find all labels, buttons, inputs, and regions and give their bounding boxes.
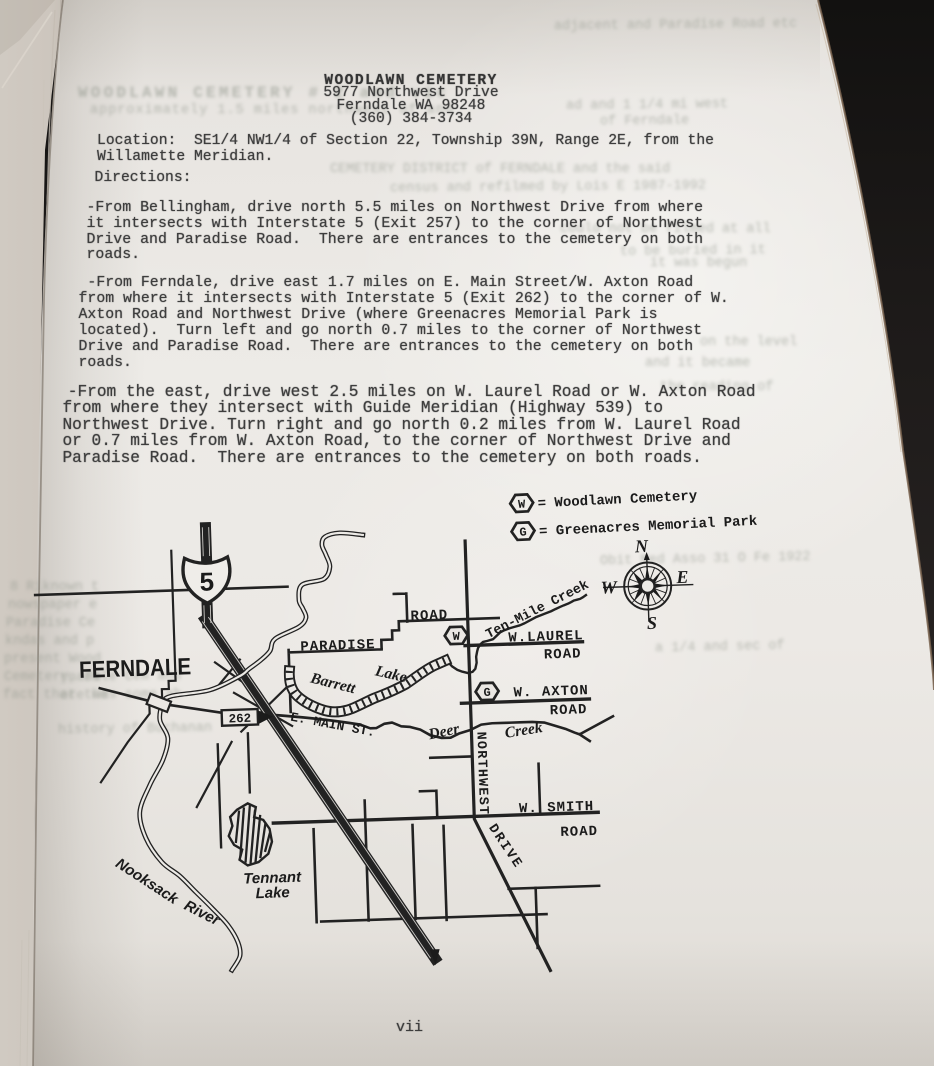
svg-text:S: S bbox=[647, 613, 658, 633]
svg-text:ROAD: ROAD bbox=[550, 702, 588, 719]
svg-text:NORTHWEST: NORTHWEST bbox=[472, 731, 490, 815]
svg-text:ROAD: ROAD bbox=[410, 608, 448, 625]
svg-text:Barrett: Barrett bbox=[308, 669, 358, 697]
svg-text:Lake: Lake bbox=[373, 662, 409, 686]
svg-text:ROAD: ROAD bbox=[560, 824, 598, 841]
svg-text:DRIVE: DRIVE bbox=[484, 822, 525, 872]
svg-text:Nooksack: Nooksack bbox=[112, 855, 181, 908]
svg-text:262: 262 bbox=[228, 712, 251, 727]
svg-text:W.LAUREL: W.LAUREL bbox=[508, 628, 584, 646]
svg-text:5: 5 bbox=[199, 566, 214, 596]
svg-text:FERNDALE: FERNDALE bbox=[79, 653, 192, 683]
svg-text:N: N bbox=[634, 536, 650, 556]
svg-text:W: W bbox=[518, 497, 527, 511]
svg-text:W. AXTON: W. AXTON bbox=[513, 683, 589, 701]
svg-text:G: G bbox=[483, 686, 491, 700]
svg-text:W: W bbox=[452, 630, 460, 644]
svg-text:Lake: Lake bbox=[255, 884, 290, 902]
svg-text:G: G bbox=[519, 525, 527, 539]
svg-text:= Greenacres Memorial Park: = Greenacres Memorial Park bbox=[539, 514, 758, 541]
svg-text:W: W bbox=[600, 577, 619, 598]
svg-text:Deer: Deer bbox=[426, 720, 462, 743]
svg-text:E: E bbox=[675, 567, 689, 587]
svg-text:River: River bbox=[181, 897, 223, 930]
svg-text:= Woodlawn Cemetery: = Woodlawn Cemetery bbox=[537, 489, 698, 513]
svg-text:ROAD: ROAD bbox=[544, 646, 582, 663]
svg-text:PARADISE: PARADISE bbox=[300, 637, 376, 655]
svg-text:W. SMITH: W. SMITH bbox=[519, 799, 595, 817]
